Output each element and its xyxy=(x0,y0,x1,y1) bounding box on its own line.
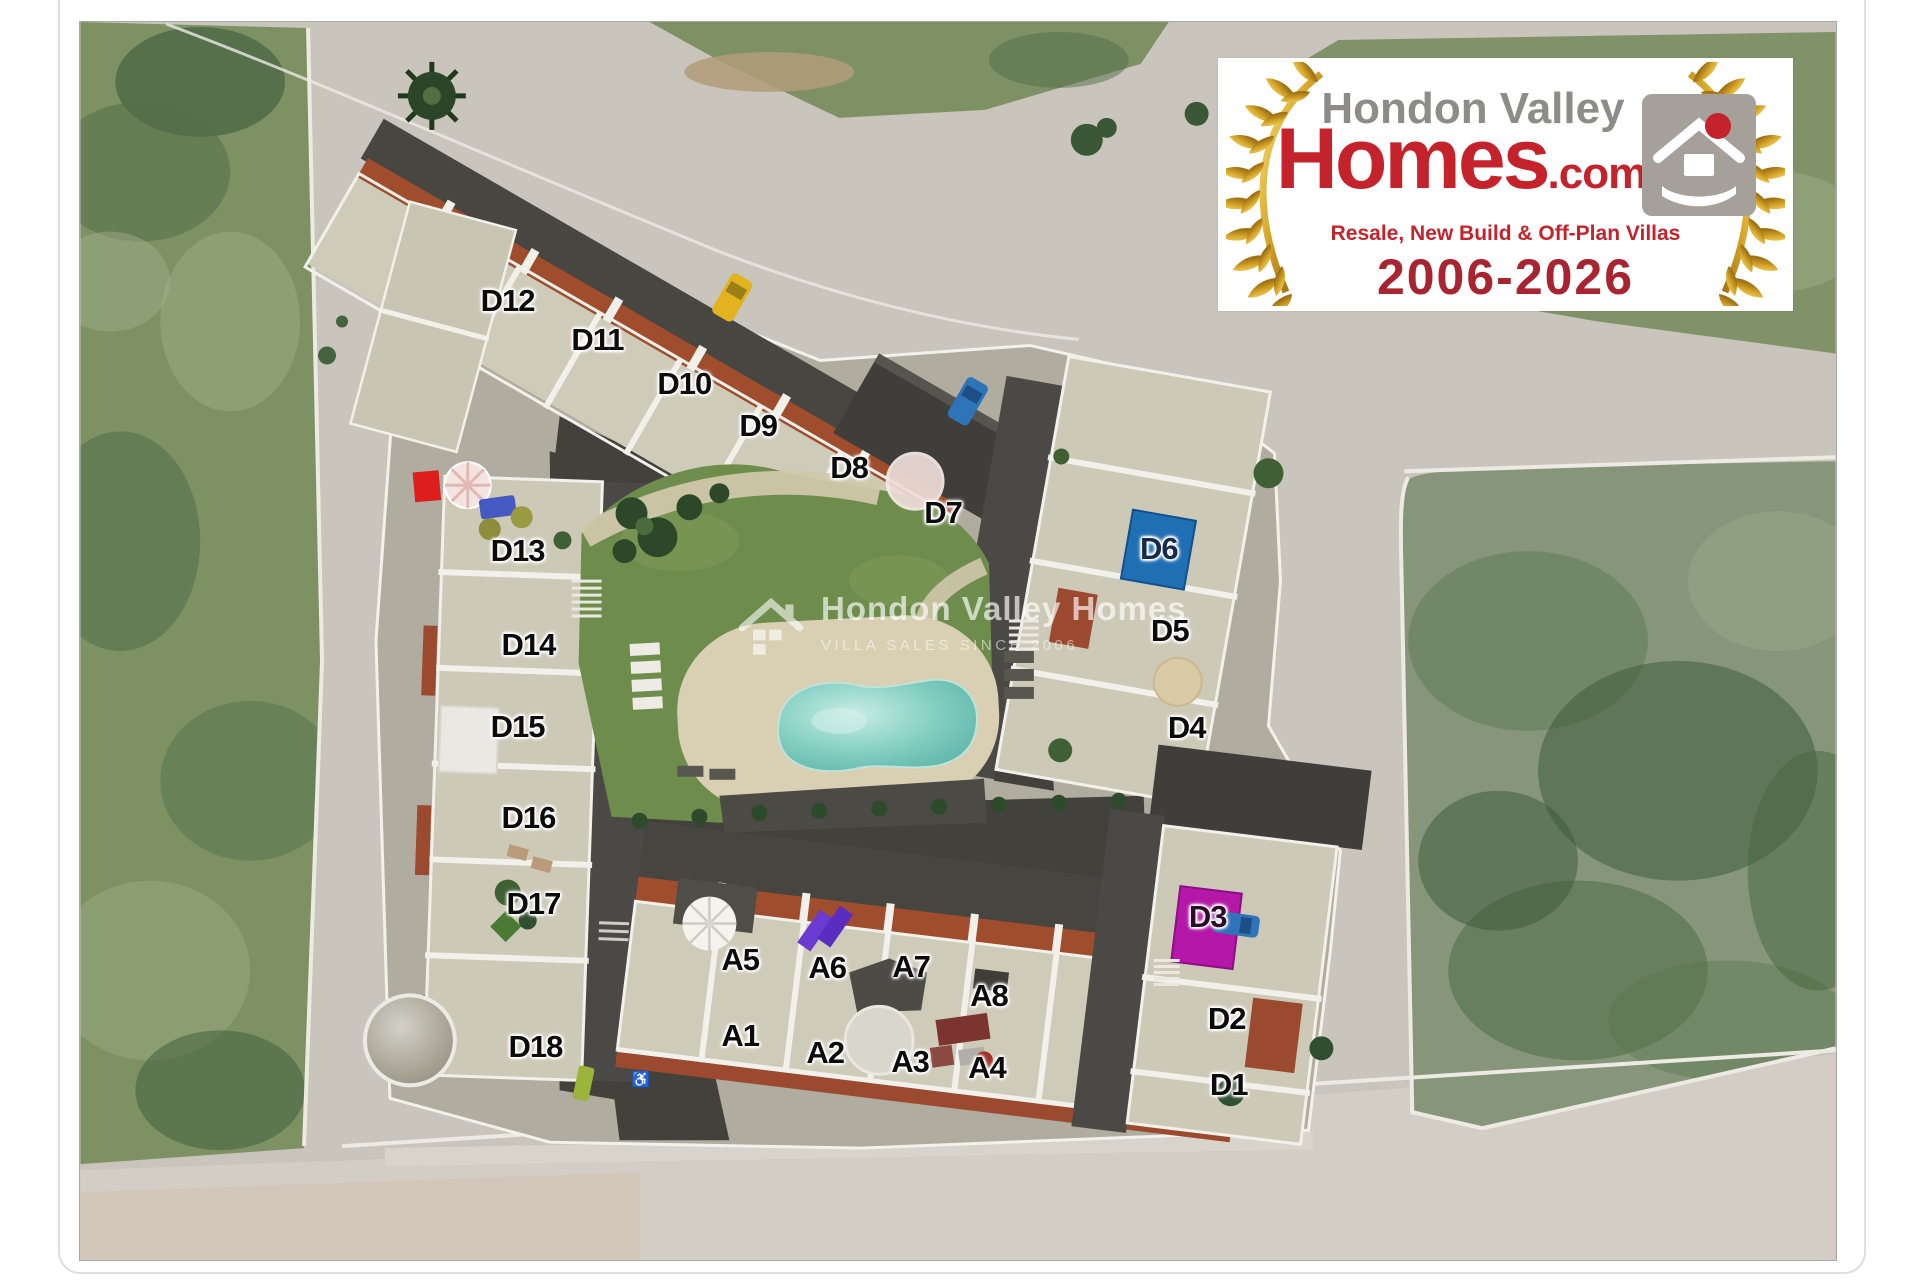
red-umbrella xyxy=(413,470,441,502)
palm-tree xyxy=(398,62,466,130)
agency-logo: Hondon Valley Homes.com Resale, New Buil… xyxy=(1218,58,1793,311)
green-field xyxy=(1398,451,1836,1140)
logo-house-icon xyxy=(1642,94,1756,216)
green-left xyxy=(80,22,340,1164)
logo-tagline: Resale, New Build & Off-Plan Villas xyxy=(1268,222,1743,246)
page: ♿ Hondon Valley Homes VILLA SALES SINCE … xyxy=(0,0,1920,1280)
a5-parasol xyxy=(682,897,736,951)
swimming-pool xyxy=(778,680,977,772)
logo-dotcom-text: .com xyxy=(1548,149,1647,198)
d15-canopy xyxy=(439,706,499,774)
logo-homes-text: Homes xyxy=(1276,111,1548,207)
site-plan-image: ♿ Hondon Valley Homes VILLA SALES SINCE … xyxy=(79,21,1837,1261)
logo-years: 2006-2026 xyxy=(1268,248,1743,306)
d7-gazebo xyxy=(887,453,943,509)
logo-name-main: Homes.com xyxy=(1246,110,1676,209)
d18-dome xyxy=(365,995,455,1085)
d6-blue-awning xyxy=(1121,510,1196,590)
disabled-parking-mark: ♿ xyxy=(632,1070,651,1088)
